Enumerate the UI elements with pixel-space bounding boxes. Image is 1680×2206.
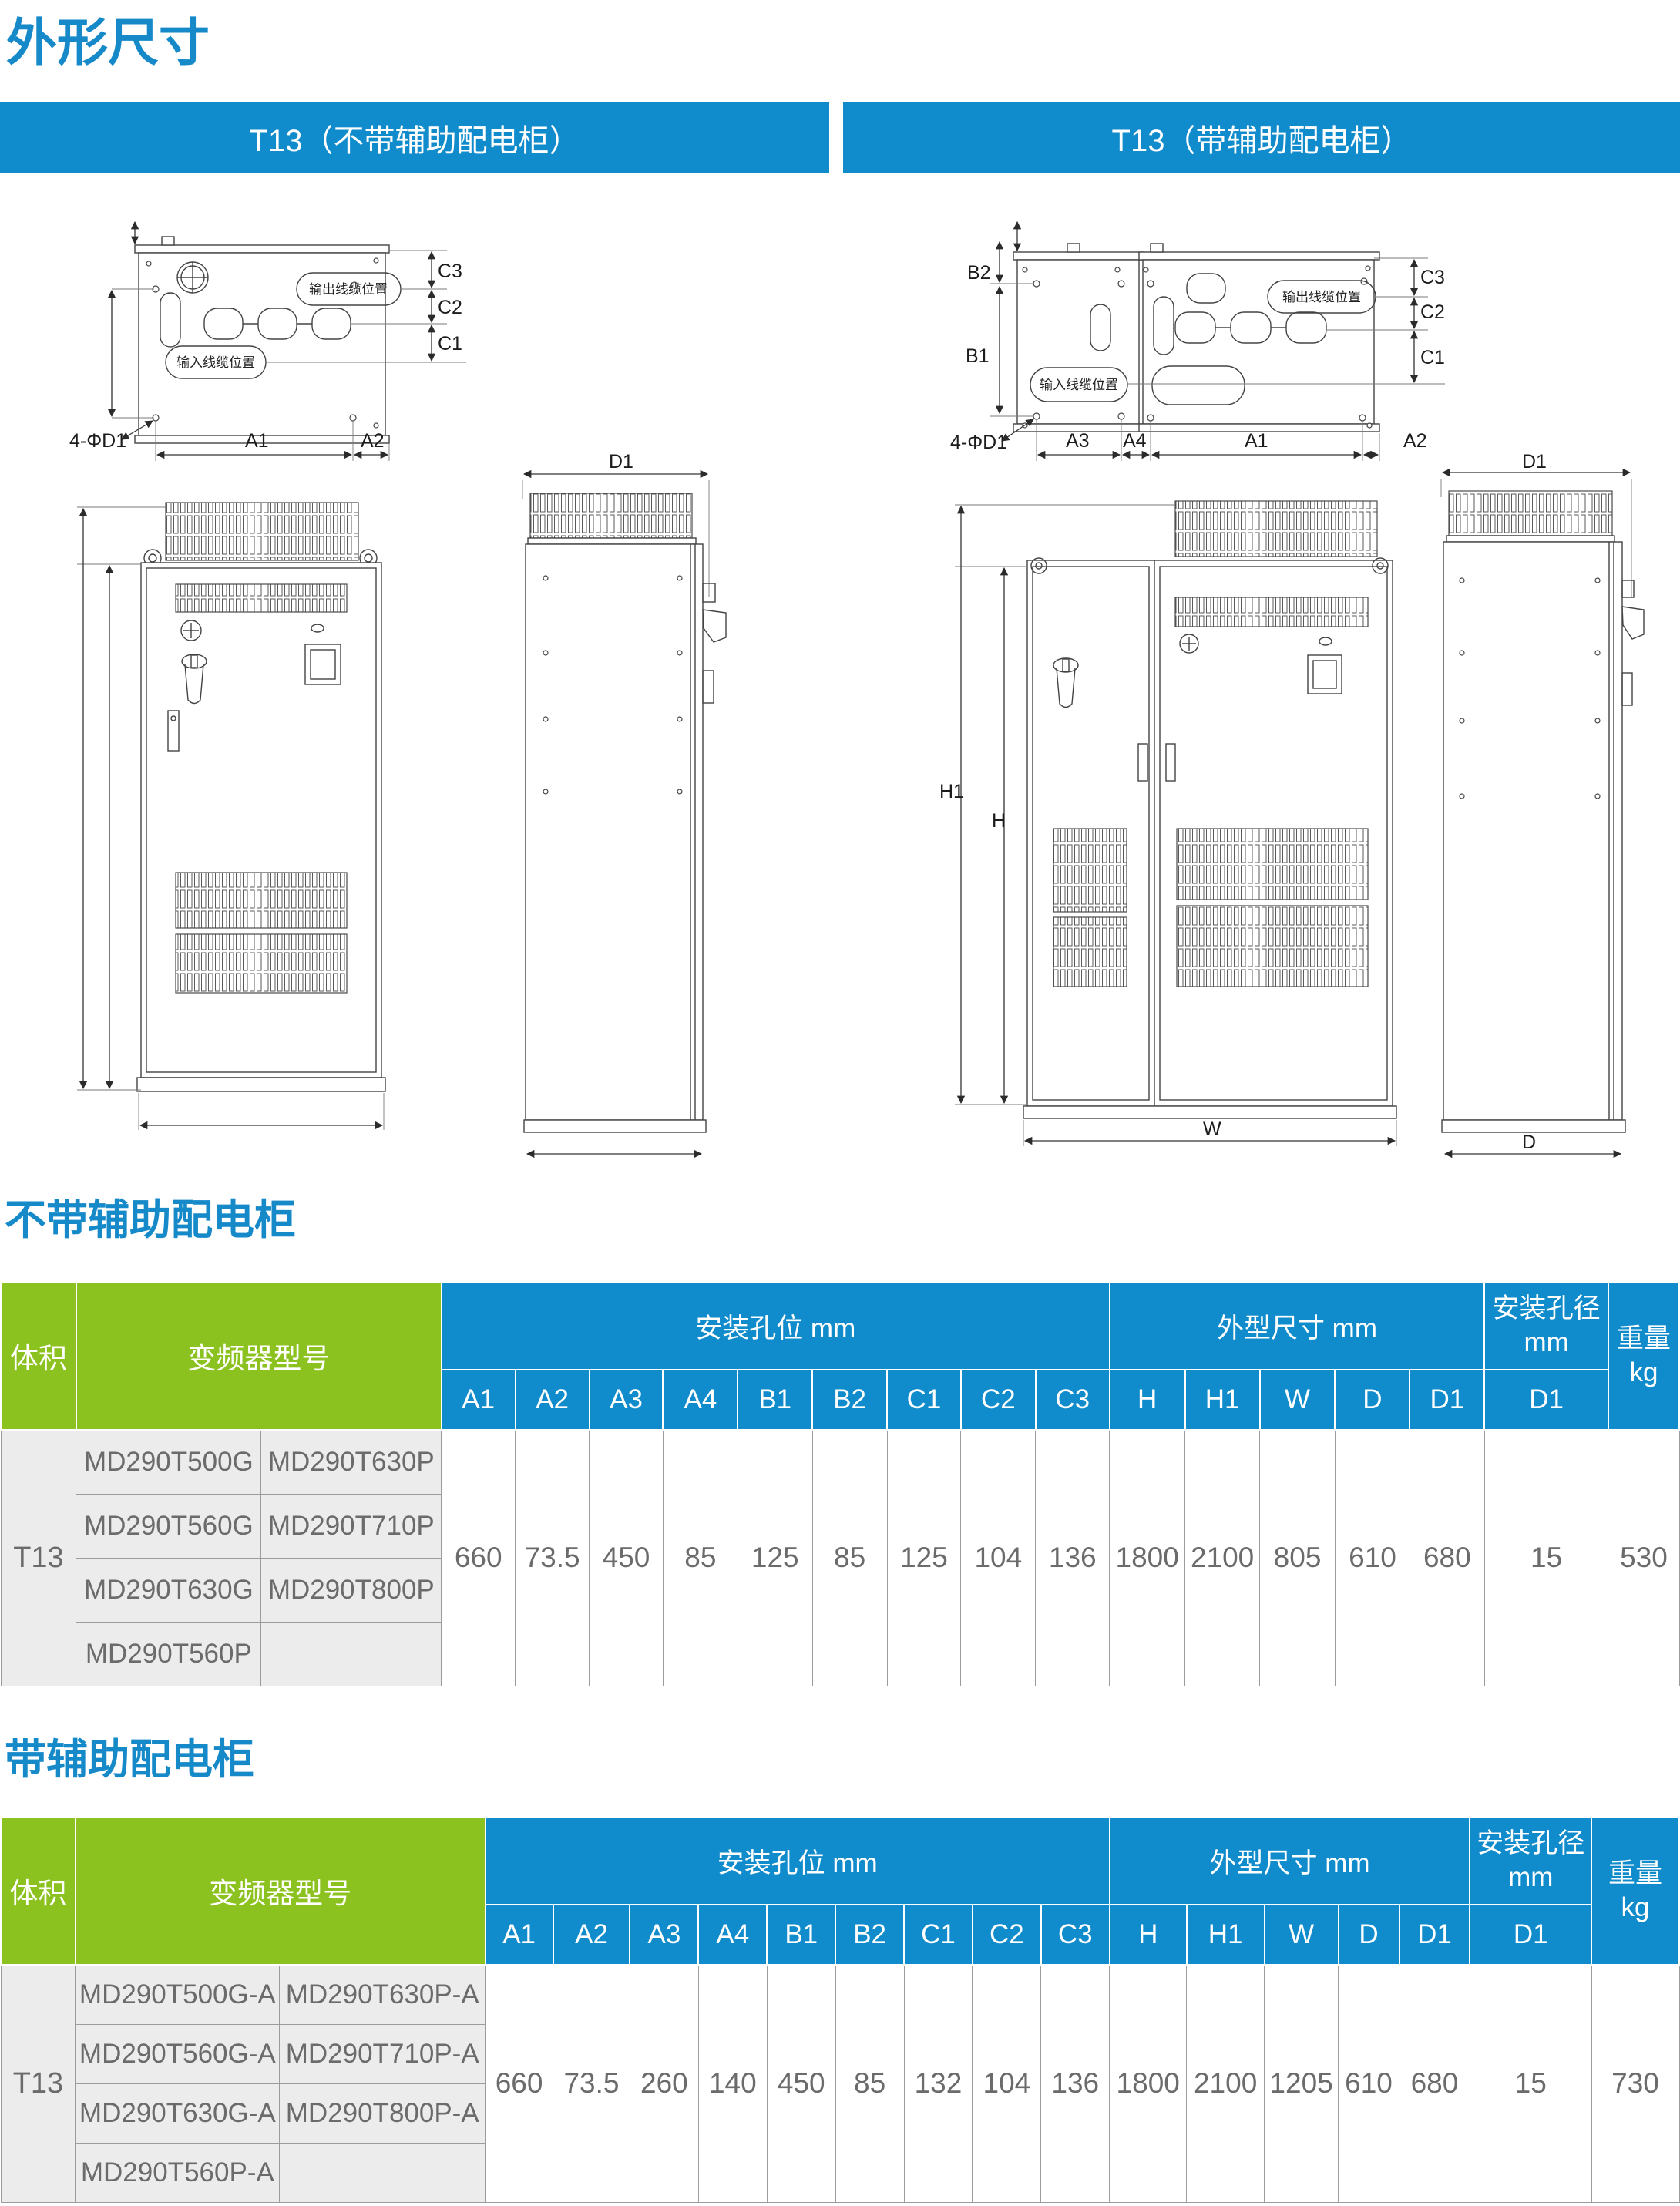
volume-cell: T13 (1, 1430, 76, 1686)
model-header: 变频器型号 (76, 1817, 486, 1965)
value-b2: 85 (835, 1965, 904, 2202)
value-b1: 125 (738, 1430, 812, 1686)
col-d1: D1 (1399, 1905, 1470, 1965)
front-view-with-aux: H1 H W (921, 489, 1403, 1164)
volume-header: 体积 (1, 1282, 76, 1430)
col-a4: A4 (663, 1370, 738, 1430)
input-cable-label: 输入线缆位置 (1040, 378, 1118, 392)
model-header: 变频器型号 (76, 1282, 442, 1430)
page-title: 外形尺寸 (6, 2, 210, 76)
banner-without-aux-label: T13（不带辅助配电柜） (250, 116, 580, 160)
dim-a2: A2 (1403, 430, 1427, 452)
col-a2: A2 (553, 1905, 630, 1965)
value-c1: 132 (904, 1965, 973, 2202)
value-hole-d1: 15 (1484, 1430, 1608, 1686)
col-c3: C3 (1041, 1905, 1110, 1965)
col-h1: H1 (1185, 1370, 1260, 1430)
header-group-row: 体积 变频器型号 安装孔位 mm 外型尺寸 mm 安装孔径 mm 重量 kg (1, 1817, 1679, 1905)
dim-c2: C2 (1420, 301, 1445, 323)
model-cell: MD290T500G (76, 1430, 261, 1494)
spec-table-without-aux: 体积 变频器型号 安装孔位 mm 外型尺寸 mm 安装孔径 mm 重量 kg A… (0, 1281, 1680, 1686)
weight-header: 重量 kg (1608, 1282, 1679, 1430)
col-c2: C2 (973, 1905, 1041, 1965)
col-a4: A4 (698, 1905, 767, 1965)
model-cell: MD290T630P-A (280, 1965, 486, 2024)
section-heading-without-aux: 不带辅助配电柜 (5, 1185, 296, 1246)
weight-unit: kg (1609, 1356, 1678, 1390)
header-group-row: 体积 变频器型号 安装孔位 mm 外型尺寸 mm 安装孔径 mm 重量 kg (1, 1282, 1679, 1370)
weight-unit: kg (1592, 1891, 1678, 1925)
model-cell: MD290T560P-A (76, 2143, 280, 2202)
value-c1: 125 (887, 1430, 961, 1686)
dim-d: D (1522, 1132, 1536, 1153)
col-c1: C1 (904, 1905, 973, 1965)
col-c2: C2 (961, 1370, 1036, 1430)
input-cable-label: 输入线缆位置 (176, 355, 255, 370)
col-w: W (1265, 1905, 1339, 1965)
table-row: T13 MD290T500G-A MD290T630P-A 660 73.5 2… (1, 1965, 1679, 2024)
value-a4: 140 (698, 1965, 767, 2202)
dim-a1: A1 (1245, 430, 1268, 452)
outline-dims-header: 外型尺寸 mm (1110, 1282, 1485, 1370)
col-c1: C1 (887, 1370, 961, 1430)
mounting-holes-header: 安装孔位 mm (486, 1817, 1110, 1905)
value-a2: 73.5 (553, 1965, 630, 2202)
col-b2: B2 (812, 1370, 887, 1430)
value-c3: 136 (1036, 1430, 1110, 1686)
col-w: W (1260, 1370, 1336, 1430)
hole-diameter-header: 安装孔径 mm (1470, 1817, 1591, 1905)
weight-title: 重量 (1592, 1857, 1678, 1891)
dim-b2: B2 (967, 262, 991, 284)
col-a2: A2 (516, 1370, 590, 1430)
dim-c3: C3 (1420, 267, 1445, 288)
value-b2: 85 (812, 1430, 887, 1686)
volume-header: 体积 (1, 1817, 76, 1965)
dim-a1: A1 (245, 430, 269, 452)
col-a1: A1 (442, 1370, 516, 1430)
dim-a4: A4 (1123, 430, 1147, 452)
top-view-with-aux: 输出线缆位置 输入线缆位置 B2 B1 C3 C2 C1 A3 A4 A1 (944, 216, 1457, 474)
banner-without-aux: T13（不带辅助配电柜） (0, 102, 829, 173)
dim-w: W (1203, 1118, 1221, 1140)
table-row: T13 MD290T500G MD290T630P 660 73.5 450 8… (1, 1430, 1679, 1494)
side-view-with-aux: D1 D (1406, 451, 1680, 1164)
dim-a2: A2 (361, 430, 385, 452)
model-cell: MD290T560P (76, 1622, 261, 1686)
cabinet-body (1023, 558, 1396, 1118)
value-h1: 2100 (1187, 1965, 1265, 2202)
section-heading-with-aux: 带辅助配电柜 (5, 1725, 254, 1786)
value-weight: 730 (1591, 1965, 1679, 2202)
dim-c1: C1 (1420, 347, 1445, 368)
value-h: 1800 (1110, 1965, 1187, 2202)
dim-c1: C1 (438, 333, 462, 355)
col-a3: A3 (590, 1370, 664, 1430)
fan-section (1175, 501, 1377, 557)
value-a3: 260 (630, 1965, 698, 2202)
hole-diameter-title: 安装孔径 (1470, 1827, 1591, 1861)
model-cell (261, 1622, 442, 1686)
hole-diameter-unit: mm (1485, 1326, 1608, 1360)
value-d1: 680 (1399, 1965, 1470, 2202)
model-cell: MD290T800P (261, 1558, 442, 1622)
value-c2: 104 (961, 1430, 1036, 1686)
hole-diameter-header: 安装孔径 mm (1484, 1282, 1608, 1370)
value-a1: 660 (442, 1430, 516, 1686)
volume-cell: T13 (1, 1965, 76, 2202)
dim-h: H (992, 810, 1006, 832)
dim-d1: D1 (609, 451, 633, 472)
model-cell: MD290T630G-A (76, 2083, 280, 2143)
front-view-without-aux (62, 493, 455, 1164)
col-b1: B1 (738, 1370, 812, 1430)
model-cell: MD290T500G-A (76, 1965, 280, 2024)
dim-c3: C3 (438, 261, 462, 282)
value-hole-d1: 15 (1470, 1965, 1591, 2202)
col-h1: H1 (1187, 1905, 1265, 1965)
value-a4: 85 (663, 1430, 738, 1686)
col-h: H (1110, 1905, 1187, 1965)
model-cell (280, 2143, 486, 2202)
col-d1: D1 (1410, 1370, 1484, 1430)
side-view-without-aux: D1 (470, 451, 840, 1164)
cabinet-body (137, 563, 385, 1091)
value-w: 1205 (1265, 1965, 1339, 2202)
dim-holes: 4-ΦD1 (950, 432, 1007, 453)
col-a3: A3 (630, 1905, 698, 1965)
cabinet-top-plates (1013, 244, 1379, 432)
value-h: 1800 (1110, 1430, 1185, 1686)
banner-with-aux: T13（带辅助配电柜） (843, 102, 1680, 173)
output-cable-label: 输出线缆位置 (1282, 290, 1361, 304)
model-cell: MD290T710P (261, 1494, 442, 1558)
dim-c2: C2 (438, 297, 462, 318)
hole-diameter-title: 安装孔径 (1485, 1292, 1608, 1326)
dim-d1: D1 (1522, 451, 1547, 472)
col-c3: C3 (1036, 1370, 1110, 1430)
value-a1: 660 (486, 1965, 553, 2202)
hole-diameter-unit: mm (1470, 1861, 1591, 1895)
value-a3: 450 (590, 1430, 664, 1686)
dim-b1: B1 (966, 345, 990, 367)
col-d: D (1339, 1905, 1399, 1965)
model-cell: MD290T560G (76, 1494, 261, 1558)
banner-with-aux-label: T13（带辅助配电柜） (1112, 116, 1412, 160)
value-d: 610 (1335, 1430, 1410, 1686)
col-b2: B2 (835, 1905, 904, 1965)
col-a1: A1 (486, 1905, 553, 1965)
model-cell: MD290T630G (76, 1558, 261, 1622)
output-cable-label: 输出线缆位置 (309, 282, 388, 297)
weight-header: 重量 kg (1591, 1817, 1679, 1965)
value-c2: 104 (973, 1965, 1041, 2202)
cabinet-side (1442, 491, 1644, 1132)
spec-table-with-aux: 体积 变频器型号 安装孔位 mm 外型尺寸 mm 安装孔径 mm 重量 kg A… (0, 1816, 1680, 2203)
col-h: H (1110, 1370, 1185, 1430)
model-cell: MD290T710P-A (280, 2024, 486, 2083)
value-c3: 136 (1041, 1965, 1110, 2202)
value-d1: 680 (1410, 1430, 1484, 1686)
top-view-without-aux: 输出线缆位置 输入线缆位置 C3 C2 C1 A1 A2 4-ΦD1 (46, 216, 478, 474)
value-d: 610 (1339, 1965, 1399, 2202)
col-d: D (1335, 1370, 1410, 1430)
col-hole-d1: D1 (1470, 1905, 1591, 1965)
model-cell: MD290T630P (261, 1430, 442, 1494)
dim-holes: 4-ΦD1 (69, 430, 126, 452)
cabinet-side (524, 493, 726, 1132)
mounting-holes-header: 安装孔位 mm (442, 1282, 1110, 1370)
value-weight: 530 (1608, 1430, 1679, 1686)
dim-h1: H1 (939, 781, 964, 802)
model-cell: MD290T560G-A (76, 2024, 280, 2083)
weight-title: 重量 (1609, 1322, 1678, 1356)
model-cell: MD290T800P-A (280, 2083, 486, 2143)
value-w: 805 (1260, 1430, 1336, 1686)
col-b1: B1 (767, 1905, 835, 1965)
cabinet-top-plate (135, 237, 389, 443)
fan-section (144, 503, 377, 567)
outline-dims-header: 外型尺寸 mm (1110, 1817, 1470, 1905)
col-hole-d1: D1 (1484, 1370, 1608, 1430)
value-b1: 450 (767, 1965, 835, 2202)
dim-a3: A3 (1066, 430, 1090, 452)
value-a2: 73.5 (516, 1430, 590, 1686)
value-h1: 2100 (1185, 1430, 1260, 1686)
